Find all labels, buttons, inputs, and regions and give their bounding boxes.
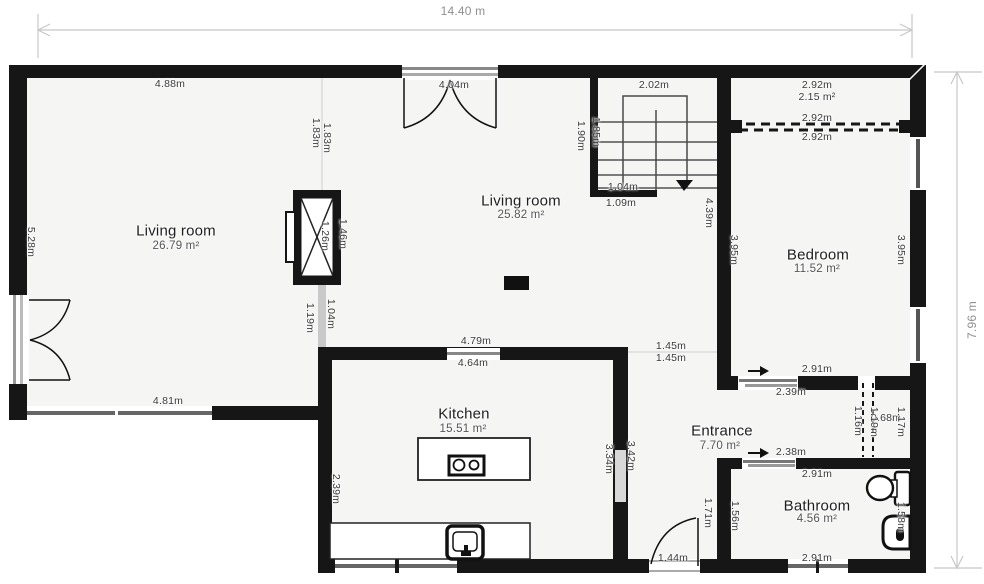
dimension-label: 1.19m <box>868 407 880 437</box>
dimension-label: 1.17m <box>895 407 907 437</box>
dimension-label: 2.02m <box>639 79 669 91</box>
room-label: Bedroom <box>787 247 849 264</box>
dimension-label: 1.83m <box>321 123 333 153</box>
dimension-label: 4.64m <box>458 357 488 369</box>
dimension-label: 2.92m <box>802 79 832 91</box>
dimension-label: 1.71m <box>702 498 714 528</box>
dimension-label: 4.81m <box>153 395 183 407</box>
room-area-label: 11.52 m² <box>794 263 840 275</box>
dimension-label: 1.44m <box>658 552 688 564</box>
dimension-label: 3.95m <box>728 235 740 265</box>
dimension-label: 5.28m <box>25 227 37 257</box>
dimension-label: 2.15 m² <box>799 91 836 103</box>
chimney <box>286 190 341 285</box>
room-label: Bathroom <box>784 498 851 515</box>
floor-plan-drawing <box>0 0 984 584</box>
dimension-label: 1.09m <box>606 197 636 209</box>
dimension-label: 1.04m <box>608 181 638 193</box>
dimension-label: 1.45m <box>656 340 686 352</box>
dimension-label: 1.58m <box>895 502 907 532</box>
room-area-label: 25.82 m² <box>498 209 545 221</box>
dimension-label: 1.16m <box>852 406 864 436</box>
kitchen-island <box>418 438 530 480</box>
dimension-label: 2.39m <box>776 386 806 398</box>
dimension-label: 1.45m <box>656 352 686 364</box>
dimension-label: 1.04m <box>325 299 337 329</box>
dimension-label: 1.26m <box>319 221 331 251</box>
dimension-label: 3.95m <box>895 235 907 265</box>
dimension-label: 4.04m <box>439 79 469 91</box>
dimension-label: 4.88m <box>155 78 185 90</box>
dimension-label: 2.91m <box>802 363 832 375</box>
dimension-label: 2.38m <box>776 446 806 458</box>
dimension-label: 2.91m <box>802 552 832 564</box>
room-label: Kitchen <box>438 406 489 423</box>
dimension-label: 3.42m <box>625 441 637 471</box>
kitchen-counter <box>330 523 530 559</box>
dimension-label: 1.46m <box>337 219 349 249</box>
dimension-label: 7.96 m <box>965 301 979 339</box>
dimension-label: 2.91m <box>802 468 832 480</box>
kitchen-sink <box>447 526 483 559</box>
dimension-label: 1.56m <box>729 501 741 531</box>
room-label: Living room <box>136 223 216 240</box>
room-area-label: 26.79 m² <box>153 240 200 252</box>
tv-unit <box>504 276 529 290</box>
room-area-label: 7.70 m² <box>700 440 740 452</box>
dimension-label: 4.39m <box>703 198 715 228</box>
dimension-label: 1.85m <box>590 117 602 147</box>
dimension-label: 2.92m <box>802 131 832 143</box>
dimension-label: 3.34m <box>603 444 615 474</box>
dimension-label: 1.90m <box>575 121 587 151</box>
dimension-label: 1.19m <box>304 303 316 333</box>
room-area-label: 4.56 m² <box>797 513 837 525</box>
bathroom-sliding-door <box>742 458 796 469</box>
dimension-label: 2.92m <box>802 112 832 124</box>
room-label: Living room <box>481 193 561 210</box>
floor-plan-canvas: 14.40 m7.96 m4.88m4.04m2.02m2.92m2.15 m²… <box>0 0 984 584</box>
dimension-label: 4.79m <box>461 335 491 347</box>
dimension-label: 2.39m <box>330 474 342 504</box>
dimension-label: 14.40 m <box>441 4 486 18</box>
room-area-label: 15.51 m² <box>440 423 487 435</box>
room-label: Entrance <box>691 423 753 440</box>
